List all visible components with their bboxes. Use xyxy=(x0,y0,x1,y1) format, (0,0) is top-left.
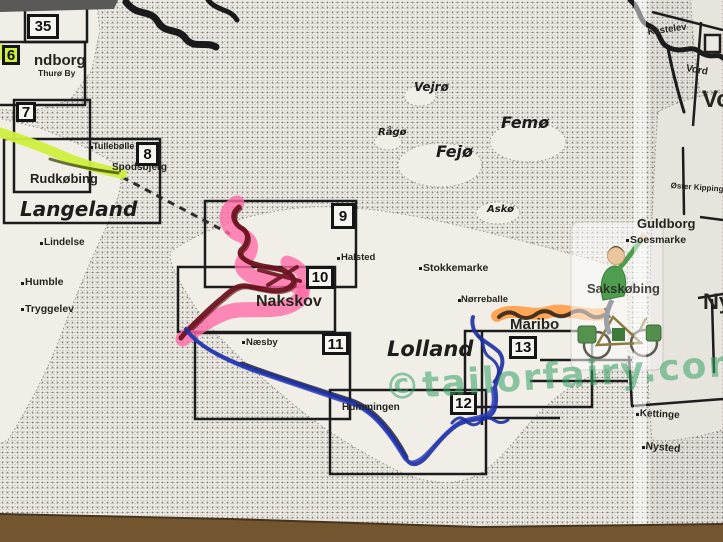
sheet-10-number: 10 xyxy=(306,266,334,289)
road-top-left xyxy=(126,2,216,47)
label-thuro-by: Thurø By xyxy=(38,68,75,78)
label-svendborg-partial: ndborg xyxy=(34,52,86,69)
cyclist-head xyxy=(608,248,625,265)
label-rudkobing: Rudkøbing xyxy=(30,171,98,186)
town-dot xyxy=(242,341,245,344)
sheet-7-number: 7 xyxy=(16,102,36,122)
map-photo: 35 6 7 8 9 10 11 12 13 ndborg Thurø By T… xyxy=(0,0,723,542)
town-dot xyxy=(337,257,340,260)
town-dot xyxy=(626,239,629,242)
map-graphics xyxy=(0,0,723,542)
label-halsted: Halsted xyxy=(341,252,375,263)
town-dot xyxy=(642,446,645,449)
label-norreballe: Nørreballe xyxy=(461,294,508,305)
sheet-6-number: 6 xyxy=(2,45,20,65)
sheet-9-number: 9 xyxy=(331,203,355,229)
road-top-left-2 xyxy=(208,0,237,20)
label-kettinge: Kettinge xyxy=(639,408,680,421)
ferry-dashed-line xyxy=(122,177,230,234)
town-dot xyxy=(40,242,43,245)
town-dot xyxy=(636,413,639,416)
sheet-35-number: 35 xyxy=(27,14,59,39)
town-dot xyxy=(21,282,24,285)
label-ny-partial: Ny xyxy=(703,289,723,315)
label-vo-partial: Vo xyxy=(702,86,723,114)
pannier-center xyxy=(612,328,625,341)
town-dot xyxy=(419,267,422,270)
town-dot xyxy=(21,308,24,311)
label-soesmarke: Soesmarke xyxy=(630,234,686,246)
label-stokkemarke: Stokkemarke xyxy=(423,262,488,274)
label-langeland: Langeland xyxy=(20,197,137,221)
label-tullebolle: Tullebølle xyxy=(93,141,134,151)
label-humble: Humble xyxy=(25,276,64,288)
sheet-11-number: 11 xyxy=(322,333,349,355)
label-sakskobing: Sakskøbing xyxy=(587,281,660,296)
table-edge-bottom xyxy=(0,514,723,542)
label-asko: Askø xyxy=(487,204,514,215)
label-lolland: Lolland xyxy=(387,337,473,361)
label-tryggelev: Tryggelev xyxy=(25,303,74,315)
town-dot xyxy=(90,146,93,149)
label-naesby: Næsby xyxy=(246,337,278,348)
label-maribo: Maribo xyxy=(510,316,559,333)
town-dot xyxy=(458,299,461,302)
label-lindelse: Lindelse xyxy=(44,237,85,248)
sheet-8-number: 8 xyxy=(136,142,159,166)
label-nakskov: Nakskov xyxy=(256,293,322,311)
label-guldborg: Guldborg xyxy=(637,216,696,231)
label-raago: Rågø xyxy=(378,127,406,138)
label-vejro: Vejrø xyxy=(414,80,449,94)
table-edge-top xyxy=(0,0,118,12)
label-fejo: Fejø xyxy=(436,142,473,161)
label-femo: Femø xyxy=(501,113,549,132)
pannier-left xyxy=(578,326,596,343)
sheet-13-number: 13 xyxy=(509,336,537,359)
